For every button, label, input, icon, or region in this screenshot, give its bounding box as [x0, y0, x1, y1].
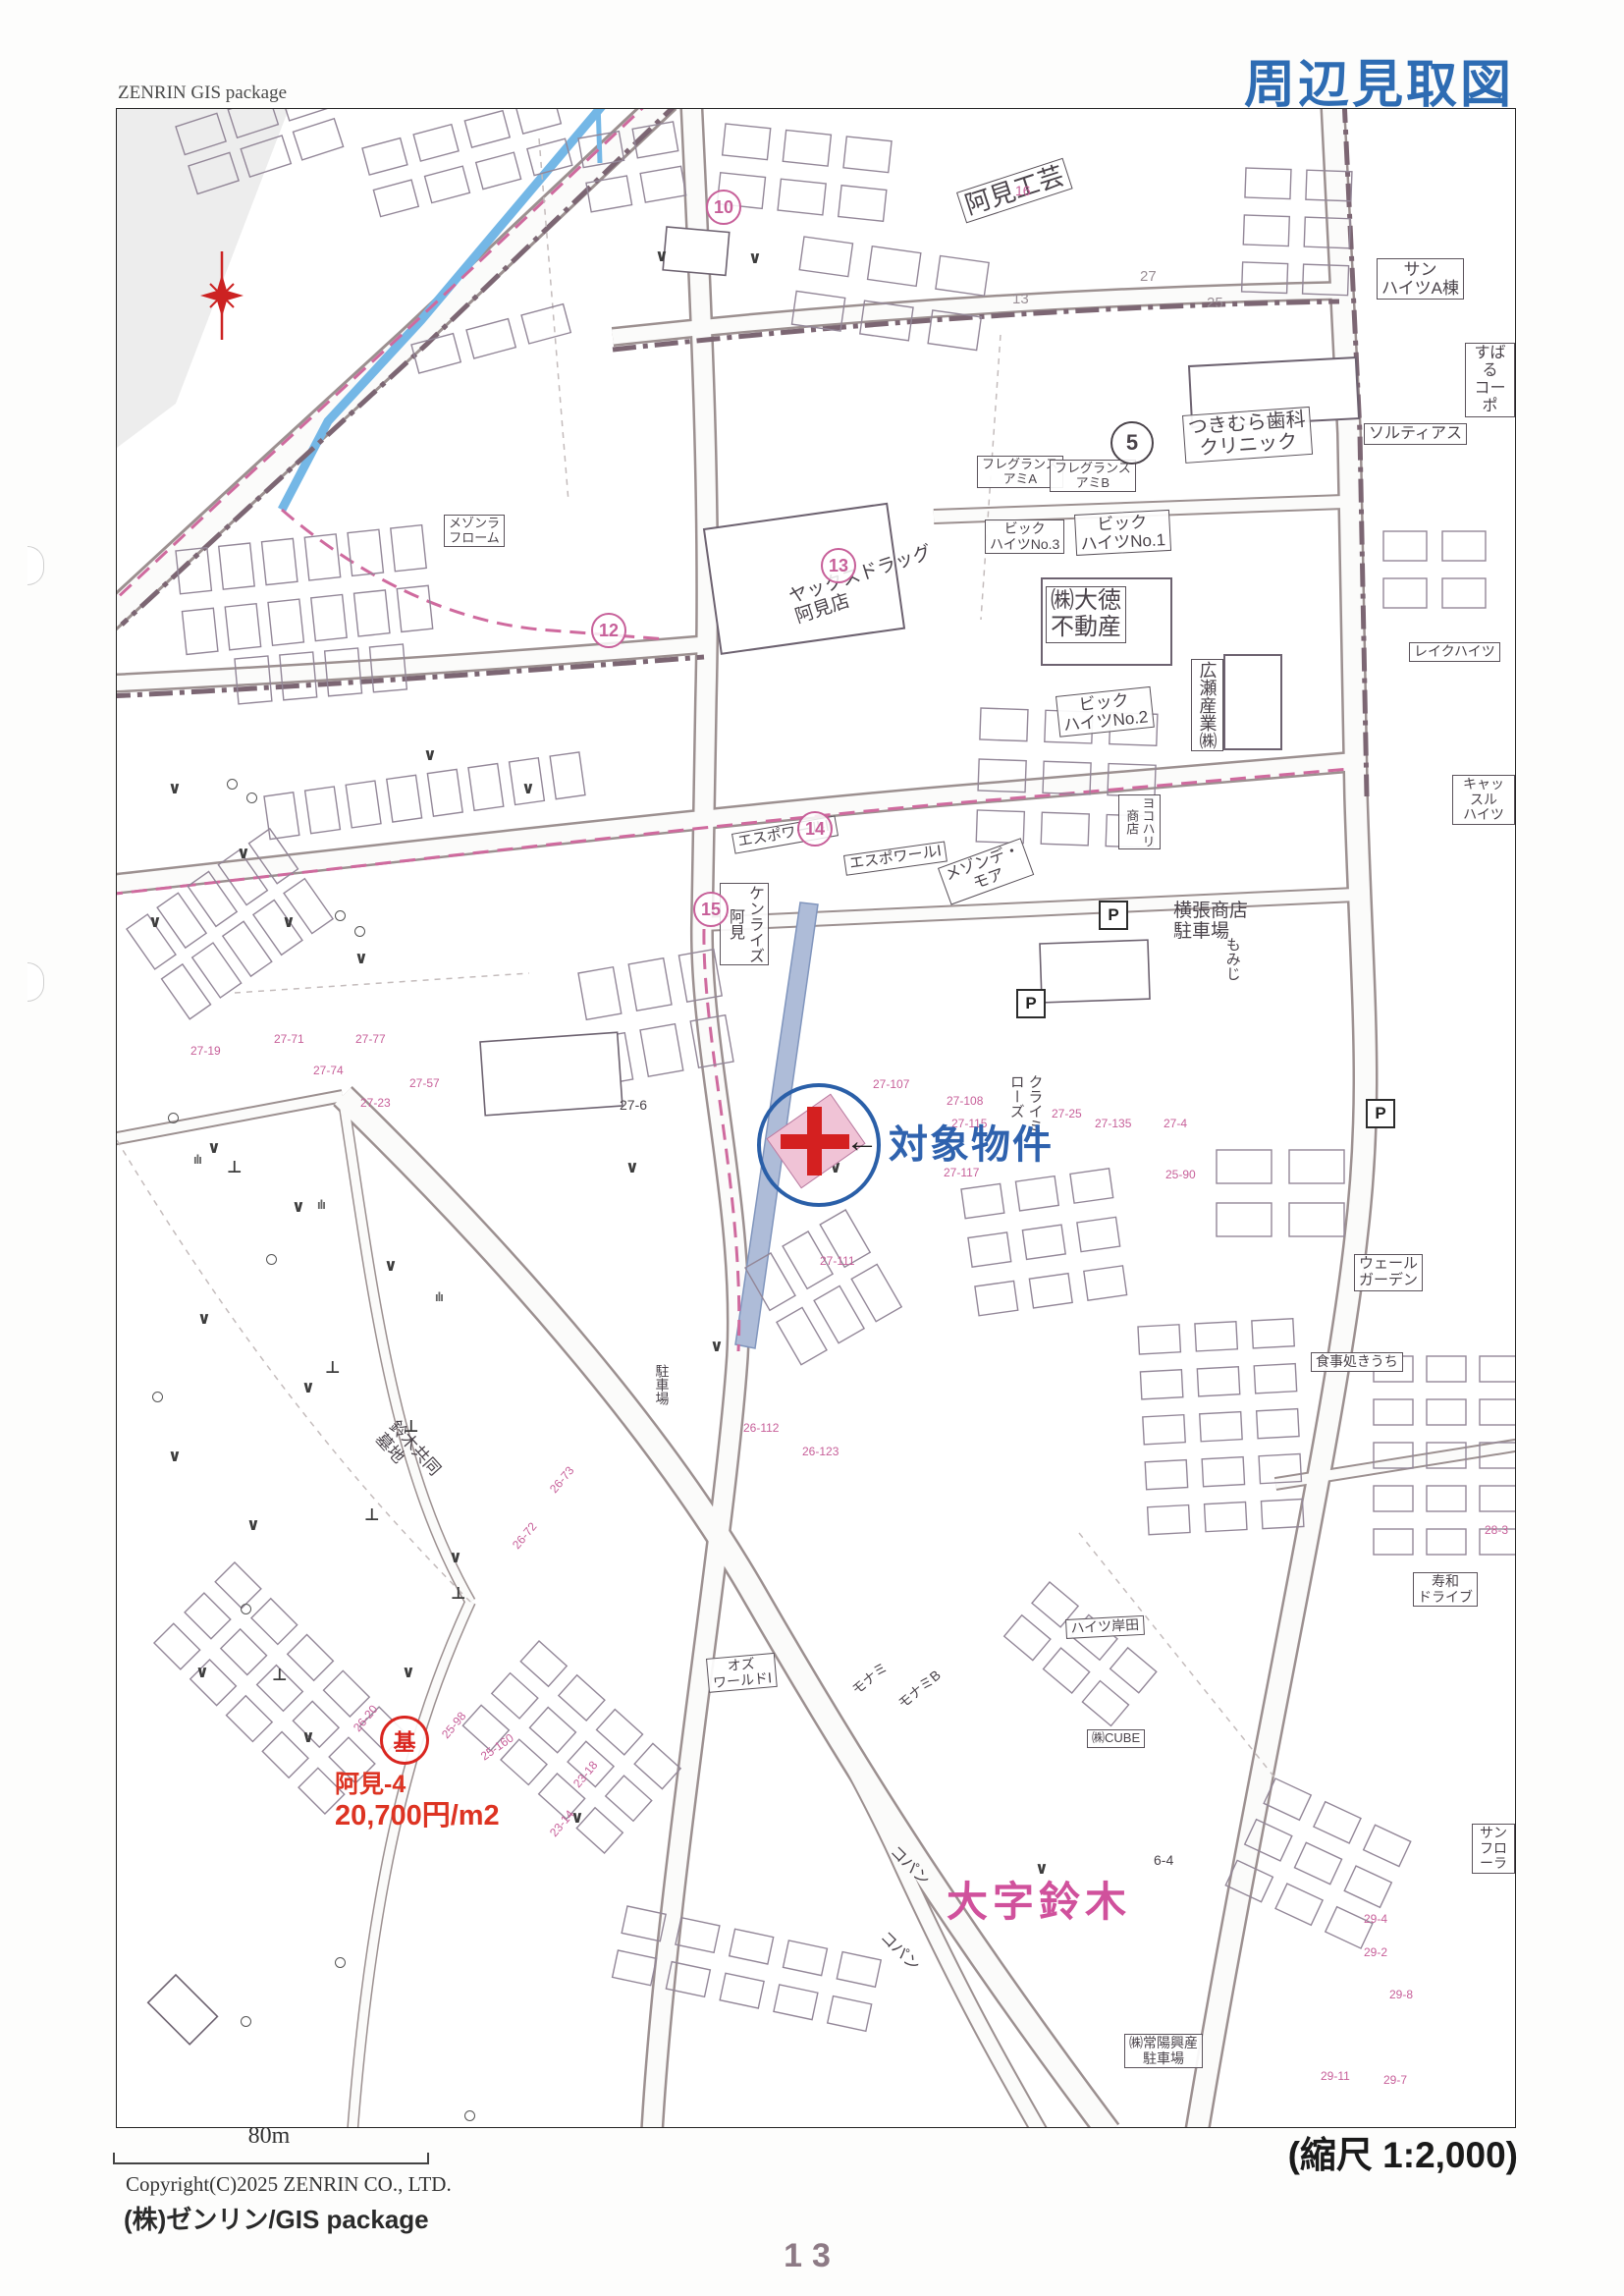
- vegetation-symbol: ∨: [237, 844, 250, 863]
- vegetation-symbol: ∨: [384, 1256, 398, 1276]
- vegetation-symbol: ∨: [710, 1337, 724, 1356]
- page-number: 13: [0, 2237, 1624, 2275]
- vegetation-symbol: ∨: [195, 1663, 209, 1682]
- cemetery-symbol: ⊥: [272, 1666, 288, 1685]
- marsh-symbol: ılı: [317, 1197, 325, 1212]
- vegetation-symbol: ∨: [570, 1808, 584, 1828]
- circled-number: 5: [1110, 421, 1154, 465]
- map-label: キャッスル ハイツ: [1452, 775, 1515, 825]
- vegetation-symbol: ∨: [148, 912, 162, 932]
- map-label: 27: [1140, 269, 1157, 286]
- map-label: もみじ: [1222, 937, 1241, 981]
- vegetation-symbol: ∨: [301, 1378, 315, 1397]
- circle-symbol: [227, 779, 238, 790]
- vegetation-symbol: ∨: [246, 1515, 260, 1535]
- map-label: フレグランス アミB: [1050, 460, 1136, 492]
- map-label: ソルティアス: [1364, 423, 1467, 445]
- circle-symbol: [241, 1604, 251, 1614]
- benchmark-marker: 基: [380, 1716, 429, 1765]
- circled-number: 10: [706, 190, 741, 225]
- map-label: 駐車場: [653, 1364, 671, 1405]
- marsh-symbol: ılı: [193, 1152, 201, 1167]
- scale-bar-label: 80m: [113, 2123, 425, 2150]
- map-label: オズ ワールドⅠ: [706, 1653, 778, 1693]
- parking-symbol: P: [1099, 901, 1128, 930]
- circle-symbol: [354, 926, 365, 937]
- parcel-number: 27-77: [355, 1032, 386, 1046]
- parking-symbol: P: [1016, 989, 1046, 1018]
- map-label: ビック ハイツNo.3: [985, 519, 1064, 554]
- parcel-number: 27-6: [620, 1097, 647, 1113]
- vegetation-symbol: ∨: [282, 912, 296, 932]
- map-label: レイクハイツ: [1409, 642, 1500, 662]
- circled-number: 13: [821, 548, 856, 583]
- parcel-number: 27-74: [313, 1064, 344, 1077]
- vegetation-symbol: ∨: [625, 1158, 639, 1177]
- parking-symbol: P: [1366, 1099, 1395, 1128]
- vegetation-symbol: ∨: [521, 779, 535, 798]
- parcel-number: 27-71: [274, 1032, 304, 1046]
- map-label: ハイツ岸田: [1065, 1615, 1145, 1639]
- vegetation-symbol: ∨: [292, 1197, 305, 1217]
- map-label: サン フローラ: [1472, 1824, 1515, 1874]
- circle-symbol: [152, 1392, 163, 1402]
- parcel-number: 26-123: [802, 1445, 839, 1458]
- vegetation-symbol: ∨: [301, 1727, 315, 1747]
- vegetation-symbol: ∨: [402, 1663, 415, 1682]
- circle-symbol: [246, 793, 257, 803]
- map-label: ㈱CUBE: [1087, 1729, 1145, 1748]
- map-label: 食事処きうち: [1311, 1352, 1403, 1372]
- vegetation-symbol: ∨: [423, 745, 437, 765]
- district-name-label: 大字鈴木: [947, 1869, 1131, 1929]
- parcel-number: 29-4: [1364, 1912, 1387, 1926]
- map-label: ヨコハリ 商店: [1118, 794, 1161, 849]
- parcel-number: 29-8: [1389, 1988, 1413, 2001]
- parcel-number: 27-108: [947, 1094, 983, 1108]
- parcel-number: 27-23: [360, 1096, 391, 1110]
- vegetation-symbol: ∨: [168, 1447, 182, 1466]
- map-label: ㈱大徳 不動産: [1046, 586, 1126, 643]
- circled-number: 12: [591, 613, 626, 648]
- circle-symbol: [335, 1957, 346, 1968]
- punch-hole: [27, 546, 44, 585]
- parcel-number: 29-7: [1383, 2073, 1407, 2087]
- map-label: ケンライズ 阿見: [720, 883, 769, 965]
- benchmark-price: 20,700円/m2: [335, 1792, 500, 1833]
- scale-bar: [113, 2153, 429, 2164]
- map-label: ビック ハイツNo.1: [1074, 510, 1171, 556]
- map-label: メゾンラ フローム: [444, 515, 505, 547]
- map-label: ㈱常陽興産 駐車場: [1124, 2034, 1203, 2068]
- parcel-number: 29-11: [1321, 2069, 1350, 2083]
- circle-symbol: [464, 2110, 475, 2121]
- target-property-label: ← 対象物件: [845, 1113, 1054, 1170]
- map-label: 広瀬産業㈱: [1191, 659, 1223, 751]
- map-label: サン ハイツA棟: [1377, 258, 1464, 300]
- parcel-number: 27-25: [1052, 1107, 1082, 1121]
- map-label: 16: [1015, 184, 1031, 199]
- cemetery-symbol: ⊥: [227, 1158, 243, 1177]
- vegetation-symbol: ∨: [197, 1309, 211, 1329]
- parcel-number: 27-111: [820, 1254, 855, 1268]
- map-label: 25: [1207, 296, 1223, 312]
- cemetery-symbol: ⊥: [451, 1584, 466, 1604]
- vegetation-symbol: ∨: [354, 949, 368, 968]
- map-label: すばる コーポ: [1465, 343, 1515, 417]
- vegetation-symbol: ∨: [207, 1138, 221, 1158]
- circle-symbol: [266, 1254, 277, 1265]
- parcel-number: 28-3: [1485, 1523, 1508, 1537]
- circle-symbol: [335, 910, 346, 921]
- map-sheet-page: ZENRIN GIS package 周辺見取図: [0, 0, 1624, 2296]
- vegetation-symbol: ∨: [168, 779, 182, 798]
- map-scale-text: (縮尺 1:2,000): [1288, 2125, 1518, 2178]
- copyright-text: Copyright(C)2025 ZENRIN CO., LTD.: [126, 2172, 452, 2197]
- parcel-number: 26-112: [743, 1421, 779, 1435]
- punch-hole: [27, 962, 44, 1002]
- publisher-text: (株)ゼンリン/GIS package: [124, 2200, 429, 2236]
- parcel-number: 27-135: [1095, 1117, 1131, 1130]
- map-label: 13: [1012, 292, 1029, 308]
- cemetery-symbol: ⊥: [404, 1417, 419, 1437]
- cemetery-symbol: ⊥: [364, 1505, 380, 1525]
- page-title: 周辺見取図: [1244, 43, 1514, 117]
- circled-number: 14: [797, 811, 833, 847]
- parcel-number: 29-2: [1364, 1945, 1387, 1959]
- cemetery-symbol: ⊥: [325, 1358, 341, 1378]
- parcel-number: 25-90: [1165, 1168, 1196, 1181]
- circle-symbol: [168, 1113, 179, 1123]
- vegetation-symbol: ∨: [748, 248, 762, 268]
- circled-number: 15: [693, 892, 729, 927]
- zenrin-header-note: ZENRIN GIS package: [118, 82, 287, 104]
- map-label: 6-4: [1154, 1853, 1173, 1869]
- target-property-text: 対象物件: [889, 1113, 1054, 1170]
- map-label: つきむら歯科 クリニック: [1182, 407, 1313, 464]
- vegetation-symbol: ∨: [449, 1548, 462, 1567]
- marsh-symbol: ılı: [435, 1289, 443, 1304]
- map-label: ウェール ガーデン: [1354, 1254, 1423, 1291]
- parcel-number: 27-4: [1164, 1117, 1187, 1130]
- parcel-number: 27-107: [873, 1077, 909, 1091]
- left-arrow-icon: ←: [845, 1122, 879, 1161]
- map-label: 寿和 ドライブ: [1413, 1572, 1478, 1607]
- circle-symbol: [241, 2016, 251, 2027]
- parcel-number: 27-57: [409, 1076, 440, 1090]
- field-area: [117, 109, 289, 448]
- map-canvas: 阿見工芸サン ハイツA棟すばる コーポソルティアスつきむら歯科 クリニックフレグ…: [116, 108, 1516, 2128]
- vegetation-symbol: ∨: [655, 246, 669, 266]
- parcel-number: 27-19: [190, 1044, 221, 1058]
